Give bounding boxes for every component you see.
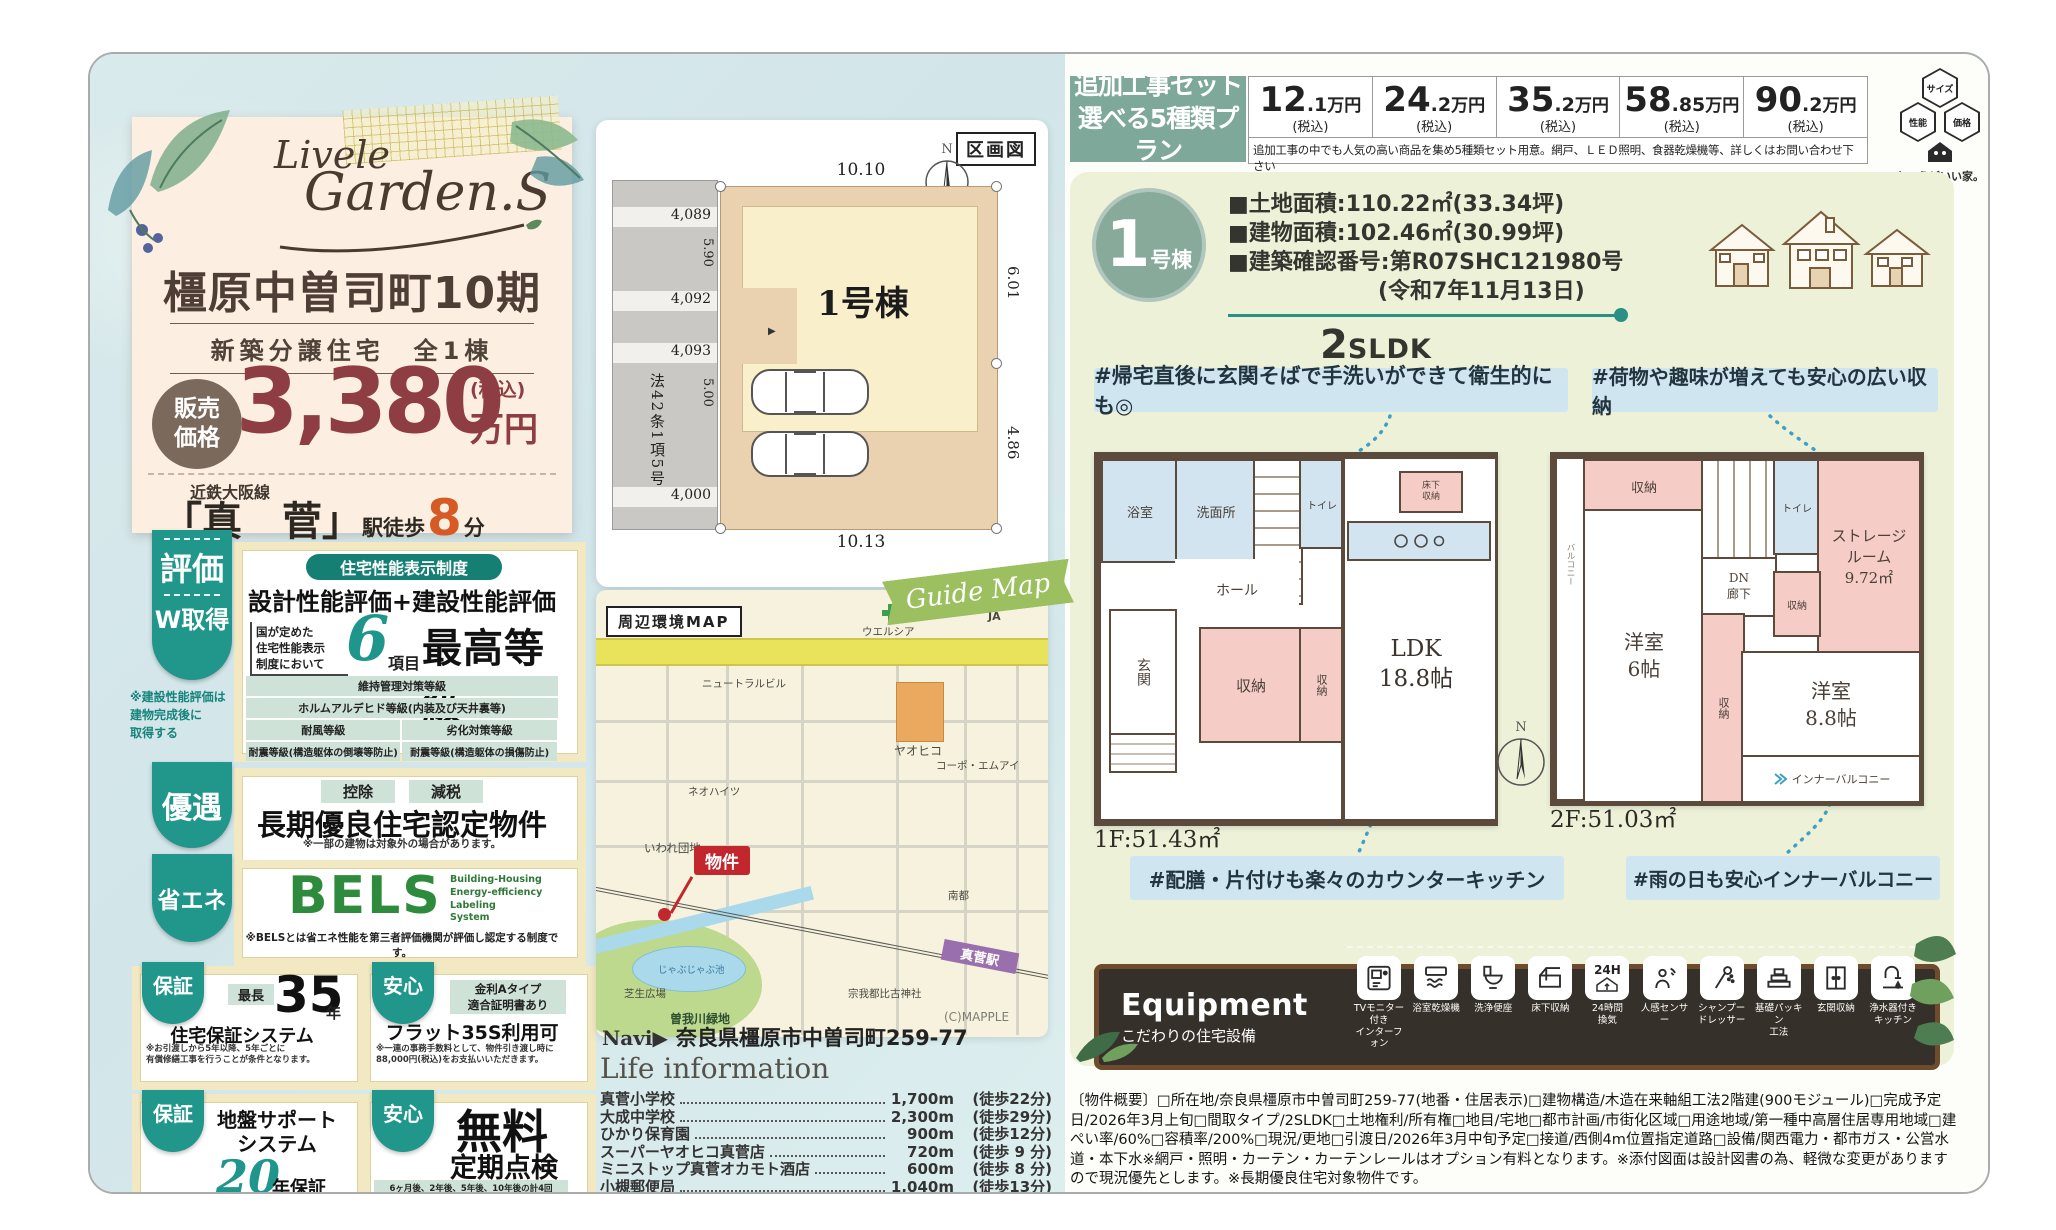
room-toilet-1f: トイレ [1299, 459, 1345, 549]
kitchen-counter [1347, 521, 1491, 561]
addon-plans-table: 12.1万円 (税込) 24.2万円 (税込) 35.2万円 (税込) 58.8… [1248, 76, 1868, 164]
compass-north-label: N [1494, 720, 1548, 735]
equipment-bar: Equipment こだわりの住宅設備 TVモニター付き インターフォン 浴室乾… [1094, 964, 1940, 1070]
motion-sensor-icon [1643, 956, 1687, 1000]
shoene-tab-label: 省エネ [158, 881, 227, 915]
plan-price-unit: 万円 [1451, 96, 1485, 116]
ground-support-title: 地盤サポート システム [212, 1108, 342, 1156]
plot-plan-card: 区画図 N 4,089 4,092 4,093 4,000 法42条1項5号 5… [596, 120, 1048, 587]
warranty35-chip: 最長 [228, 984, 274, 1005]
life-item: 大成中学校 2,300m (徒歩29分) [600, 1106, 1052, 1124]
eval-items: 維持管理対策等級 ホルムアルデヒド等級(内装及び天井裏等) 耐風等級 劣化対策等… [246, 676, 558, 761]
room-western-88: 洋室 8.8帖 [1741, 651, 1921, 759]
eval-item: 劣化対策等級 [402, 720, 556, 740]
plot-corner-dot [991, 523, 1002, 534]
ventilation-24h-icon: 24H [1585, 956, 1629, 1000]
life-item-dist: 900m [890, 1125, 954, 1143]
leader-dots [695, 1137, 885, 1139]
house-icon [1926, 140, 1954, 164]
warranty35-note: ※お引渡しから5年以降、5年ごとに 有償修繕工事を行うことが条件となります。 [146, 1044, 338, 1067]
plot-entry-marker: ▶ [768, 326, 776, 337]
eval-item: ホルムアルデヒド等級(内装及び天井裏等) [246, 698, 558, 718]
flat35-ribbon: 安心 [372, 962, 434, 1024]
floor2-area-label: 2F:51.03㎡ [1550, 800, 1676, 834]
plan-price-frac: .2 [1802, 94, 1822, 116]
equipment-item-label: 24時間 換気 [1579, 1003, 1635, 1027]
yuguu-tab-label: 優遇 [162, 783, 222, 827]
equipment-item: 24H 24時間 換気 [1579, 956, 1635, 1051]
room-bathroom: 浴室 [1101, 459, 1179, 563]
unit-number-suffix: 号棟 [1150, 244, 1192, 274]
map-yaohiko-building [896, 682, 944, 742]
road-width: 4,092 [613, 291, 717, 311]
road-width: 4,093 [613, 343, 717, 363]
road-law-label: 法42条1項5号 [647, 373, 668, 487]
hexagon-price-label: 価格 [1946, 104, 1978, 140]
arrow-icon [1772, 772, 1788, 786]
station-walk-label: 駅徒歩 [362, 512, 425, 542]
plan-price-int: 12 [1260, 80, 1307, 120]
room-storage-2f-b: 収納 [1701, 613, 1745, 803]
plan-price-int: 58 [1624, 80, 1671, 120]
ground-support-years: 20 [216, 1150, 280, 1194]
addon-plan-price: 24.2万円 (税込) [1372, 77, 1496, 137]
equipment-item: TVモニター付き インターフォン [1351, 956, 1407, 1051]
entrance-storage-icon [1814, 956, 1858, 1000]
map-title: 周辺環境MAP [606, 606, 742, 637]
hexagon-price: 価格 [1944, 102, 1980, 142]
bels-note: ※BELSとは省エネ性能を第三者評価機関が評価し認定する制度です。 [242, 930, 562, 960]
inspection-tab-label: 安心 [372, 1098, 434, 1127]
intercom-icon [1357, 956, 1401, 1000]
floorplan-1f: 浴室 洗面所 UP トイレ ホール 玄関 収納 収納 床下 収納 LDK 18.… [1094, 452, 1498, 826]
equipment-items: TVモニター付き インターフォン 浴室乾燥機 洗浄便座 [1347, 946, 1935, 1051]
plan-price-unit: 万円 [1705, 96, 1739, 116]
life-item: 小槻郵便局 1,040m (徒歩13分) [600, 1176, 1052, 1194]
eval-lead: 国が定めた 住宅性能表示 制度において [250, 622, 348, 676]
property-marker-dot [658, 908, 671, 921]
guide-map: 大和高田桜井線 真菅駅 ウエルシア JA ニュートラルビル ヤオヒコ コーポ・エ… [596, 590, 1048, 1037]
shoene-ribbon: 省エネ [152, 854, 232, 942]
life-item-name: 小槻郵便局 [600, 1176, 675, 1195]
equipment-item-label: 人感センサー [1637, 1003, 1693, 1027]
eval-count: 6 [346, 608, 389, 670]
equipment-item-label: 床下収納 [1522, 1003, 1578, 1015]
life-item-walk: (徒歩13分) [954, 1176, 1052, 1195]
equipment-item: 人感センサー [1637, 956, 1693, 1051]
yuguu-chip-genzei: 減税 [409, 780, 483, 803]
dim-right-lower: 4.86 [1004, 426, 1022, 459]
eval-item: 維持管理対策等級 [246, 676, 558, 696]
price-unit: 万円 [470, 402, 538, 451]
road-width: 4,000 [613, 487, 717, 507]
inner-balcony-label: インナーバルコニー [1792, 771, 1891, 787]
equipment-subtitle: こだわりの住宅設備 [1121, 1025, 1347, 1046]
plan-price-int: 90 [1755, 80, 1802, 120]
flat35-tab-label: 安心 [372, 970, 434, 999]
ground-support-tab-label: 保証 [142, 1098, 204, 1127]
evaluation-panel: 住宅性能表示制度 設計性能評価+建設性能評価 国が定めた 住宅性能表示 制度にお… [234, 542, 586, 762]
leader-dots [680, 1120, 885, 1122]
spec-confirmation-no: ■建築確認番号:第R07SHC121980号 [1228, 248, 1768, 277]
plan-price-frac: .2 [1431, 94, 1451, 116]
room-storage-small: 収納 [1299, 627, 1343, 743]
addon-plan-price: 90.2万円 (税込) [1743, 77, 1867, 137]
callout-washbasin: #帰宅直後に玄関そばで手洗いができて衛生的にも◎ [1094, 368, 1568, 412]
inspection-note: 6ヶ月後、2年後、5年後、10年後の計4回 [374, 1180, 568, 1194]
map-label-welcia: ウエルシア [862, 624, 915, 639]
leaf-decoration-icon [482, 102, 592, 222]
flat35-chip: 金利Aタイプ 適合証明書あり [450, 980, 566, 1014]
map-label-yaohiko: ヤオヒコ [894, 742, 942, 759]
room-entrance: 玄関 [1109, 609, 1177, 735]
navi-address: 奈良県橿原市中曽司町259-77 [676, 1022, 968, 1052]
road-width: 4,089 [613, 207, 717, 227]
warranty35-ribbon: 保証 [142, 962, 204, 1024]
room-hall: ホール [1175, 559, 1299, 621]
entrance-porch [1109, 733, 1177, 773]
spec-land-area: ■土地面積:110.22㎡(33.34坪) [1228, 190, 1768, 219]
addon-plans-label: 追加工事セット 選べる5種類プラン [1070, 76, 1246, 162]
yuguu-panel: 控除 減税 長期優良住宅認定物件 ※一部の建物は対象外の場合があります。 [234, 768, 586, 870]
stairs-down [1701, 459, 1777, 561]
map-station: 真菅駅 [941, 939, 1020, 974]
unit-number: 1 [1106, 213, 1151, 277]
hexagon-performance-label: 性能 [1902, 104, 1934, 140]
equipment-item: シャンプー ドレッサー [1694, 956, 1750, 1051]
price-value: 3,380 [236, 357, 472, 447]
inspection-ribbon: 安心 [372, 1090, 434, 1152]
warranty35-tab-label: 保証 [142, 970, 204, 999]
plan-price-unit: 万円 [1822, 96, 1856, 116]
room-storage-large: 収納 [1199, 627, 1303, 743]
map-road [746, 910, 1048, 913]
map-label-lawn-plaza: 芝生広場 [624, 986, 666, 1001]
plot-road-column: 4,089 4,092 4,093 4,000 法42条1項5号 [612, 180, 718, 530]
plot-corner-dot [715, 181, 726, 192]
dim-left-lower: 5.00 [700, 378, 715, 407]
room-balcony: バルコニー [1557, 459, 1586, 669]
walk-minutes: 8 [427, 489, 462, 547]
property-marker-label: 物件 [694, 846, 750, 875]
vent-badge-text: 24H [1594, 964, 1621, 976]
life-item: スーパーヤオヒコ真菅店 720m (徒歩 9 分) [600, 1141, 1052, 1159]
plan-price-frac: .85 [1672, 94, 1706, 116]
cooktop-icon [1389, 530, 1449, 552]
equipment-item: 基礎パッキン 工法 [1751, 956, 1807, 1051]
shampoo-dresser-icon [1700, 956, 1744, 1000]
plan-price-int: 24 [1383, 80, 1430, 120]
hexagon-size-label: サイズ [1924, 70, 1956, 106]
leader-dots [770, 1155, 885, 1157]
room-storage-2f-c: 収納 [1773, 571, 1821, 637]
floorplan-compass: N [1494, 720, 1548, 789]
leaf-decoration-icon [1072, 1024, 1142, 1064]
unit-detail-panel: 1 号棟 ■土地面積:110.22㎡(33.34坪) ■建物面積:102.46㎡… [1070, 172, 1954, 1066]
warranty35-years-unit: 年 [326, 1002, 341, 1023]
callout-storage: #荷物や趣味が増えても安心の広い収納 [1592, 368, 1938, 412]
plan-price-unit: 万円 [1327, 96, 1361, 116]
plot-building-label: 1号棟 [788, 276, 938, 325]
leader-dots [680, 1102, 885, 1104]
equipment-item: 床下収納 [1522, 956, 1578, 1051]
property-title: 橿原中曽司町10期 [140, 257, 564, 321]
addon-plans-note: 追加工事の中でも人気の高い商品を集め5種類セット用意。網戸、ＬＥＤ照明、食器乾燥… [1249, 137, 1867, 167]
life-item: ひかり保育園 900m (徒歩12分) [600, 1123, 1052, 1141]
life-information-list: 真菅小学校 1,700m (徒歩22分) 大成中学校 2,300m (徒歩29分… [600, 1088, 1052, 1193]
plan-price-unit: 万円 [1575, 96, 1609, 116]
map-label-pond: じゃぶじゃぶ池 [658, 962, 725, 976]
dim-left-upper: 5.90 [700, 238, 715, 267]
map-label-iware-danchi: いわれ団地 [644, 840, 701, 856]
room-inner-balcony: インナーバルコニー [1741, 755, 1921, 803]
life-item: ミニストップ真菅オカモト酒店 600m (徒歩 8 分) [600, 1158, 1052, 1176]
price-unit-block: (税込) 万円 [470, 375, 538, 451]
map-label-corpo: コーポ・エムアイ [936, 758, 1019, 773]
spec-building-area: ■建物面積:102.46㎡(30.99坪) [1228, 219, 1768, 248]
compass-north-label: N [922, 142, 972, 157]
price-tax: (税込) [470, 375, 538, 402]
eval-item: 耐震等級(構造躯体の損傷防止) [402, 742, 556, 761]
eval-tab-sublabel: W取得 [152, 600, 232, 635]
eval-tab-label: 評価 [152, 544, 232, 590]
hexagon-performance: 性能 [1900, 102, 1936, 142]
washlet-icon [1471, 956, 1515, 1000]
property-outline: 〔物件概要〕□所在地/奈良県橿原市中曽司町259-77(地番・住居表示)□建物構… [1070, 1092, 1958, 1190]
yuguu-note: ※一部の建物は対象外の場合があります。 [242, 836, 562, 851]
plot-corner-dot [991, 358, 1002, 369]
eval-header: 住宅性能表示制度 [306, 554, 502, 580]
leader-dots [680, 1190, 885, 1192]
map-label-nanto: 南都 [948, 888, 969, 903]
bels-logo: BELS [288, 868, 442, 925]
life-item-dist: 600m [890, 1160, 954, 1178]
plan-price-frac: .2 [1554, 94, 1574, 116]
equipment-item: 浴室乾燥機 [1408, 956, 1464, 1051]
leaf-decoration-icon [90, 90, 250, 260]
plan-price-int: 35 [1507, 80, 1554, 120]
bath-dryer-icon [1414, 956, 1458, 1000]
bels-panel: BELS Building-Housing Energy-efficiency … [234, 860, 586, 966]
unit-specs: ■土地面積:110.22㎡(33.34坪) ■建物面積:102.46㎡(30.9… [1228, 190, 1768, 306]
ground-support-years-unit: 年保証 [272, 1174, 326, 1194]
room-storage-2f-a: 収納 [1583, 459, 1705, 513]
plot-corner-dot [715, 523, 726, 534]
equipment-item-label: 浴室乾燥機 [1408, 1003, 1464, 1015]
spec-confirmation-date: (令和7年11月13日) [1228, 277, 1768, 306]
addon-plan-price: 58.85万円 (税込) [1619, 77, 1743, 137]
room-storage-room: ストレージ ルーム 9.72㎡ [1817, 459, 1921, 655]
dim-top: 10.10 [786, 160, 936, 180]
unit-underline-dot [1614, 308, 1628, 322]
leaf-decoration-icon [1906, 914, 1958, 1064]
unit-number-circle: 1 号棟 [1092, 188, 1206, 302]
map-label-neo-heights: ネオハイツ [688, 784, 740, 799]
equipment-item: 玄関収納 [1808, 956, 1864, 1051]
underfloor-storage-icon [1528, 956, 1572, 1000]
room-floor-storage: 床下 収納 [1399, 471, 1463, 513]
map-label-shrine: 宗我都比古神社 [848, 986, 922, 1001]
corridor-dn: DN 廊下 [1701, 557, 1777, 617]
plot-corner-dot [991, 181, 1002, 192]
price-badge: 販売 価格 [152, 379, 242, 469]
room-washroom: 洗面所 [1175, 459, 1257, 563]
logo-swoosh-icon [274, 217, 544, 257]
eval-note: ※建設性能評価は 建物完成後に 取得する [130, 688, 266, 742]
floorplan-2f: バルコニー 収納 洋室 6帖 DN 廊下 トイレ ストレージ ルーム 9.72㎡… [1550, 452, 1924, 806]
plan-price-frac: .1 [1307, 94, 1327, 116]
price-divider [148, 473, 556, 475]
map-main-road [596, 638, 1048, 666]
dim-bottom: 10.13 [786, 532, 936, 552]
leader-dots [815, 1172, 885, 1174]
addon-plan-price: 12.1万円 (税込) [1249, 77, 1372, 137]
yuguu-chip-kojo: 控除 [321, 780, 395, 803]
equipment-item-label: シャンプー ドレッサー [1694, 1003, 1750, 1027]
equipment-title: Equipment [1121, 988, 1347, 1023]
equipment-item-label: 洗浄便座 [1465, 1003, 1521, 1015]
walk-unit: 分 [464, 512, 485, 542]
ground-support-ribbon: 保証 [142, 1090, 204, 1152]
map-road [596, 780, 1048, 783]
foundation-packing-icon [1757, 956, 1801, 1000]
eval-ribbon: 評価 W取得 [152, 530, 232, 680]
life-item-dist: 720m [890, 1143, 954, 1161]
callout-inner-balcony: #雨の日も安心インナーバルコニー [1626, 856, 1940, 900]
eval-title: 設計性能評価+建設性能評価 [242, 582, 562, 617]
floor1-area-label: 1F:51.43㎡ [1094, 820, 1220, 854]
compass-icon [1494, 735, 1548, 789]
eval-count-unit: 項目 [388, 650, 420, 674]
room-toilet-2f: トイレ [1773, 459, 1821, 555]
navi-row: Navi▶ 奈良県橿原市中曽司町259-77 [602, 1022, 968, 1052]
life-item-dist: 1,040m [890, 1178, 954, 1195]
house-sketches-icon [1706, 198, 1932, 304]
map-label-neutral-bldg: ニュートラルビル [702, 676, 786, 691]
life-information-title: Life information [600, 1052, 829, 1085]
dim-right-upper: 6.01 [1004, 266, 1022, 299]
flat35-note: ※一連の事務手数料として、物件引き渡し時に 88,000円(税込)をお支払いいた… [376, 1044, 570, 1067]
car-icon [746, 426, 874, 482]
life-item: 真菅小学校 1,700m (徒歩22分) [600, 1088, 1052, 1106]
equipment-item-label: 玄関収納 [1808, 1003, 1864, 1015]
equipment-item: 洗浄便座 [1465, 956, 1521, 1051]
life-item-dist: 2,300m [890, 1108, 954, 1126]
equipment-item-label: 基礎パッキン 工法 [1751, 1003, 1807, 1039]
eval-item: 耐風等級 [246, 720, 400, 740]
room-ldk-label: LDK 18.8帖 [1341, 635, 1491, 695]
room-western-6: 洋室 6帖 [1583, 509, 1705, 803]
bels-sub: Building-Housing Energy-efficiency Label… [450, 874, 542, 925]
life-item-dist: 1,700m [890, 1090, 954, 1108]
navi-label: Navi▶ [602, 1026, 668, 1050]
car-icon [746, 364, 874, 420]
unit-underline [1228, 314, 1620, 317]
yuguu-ribbon: 優遇 [152, 762, 232, 848]
equipment-item-label: TVモニター付き インターフォン [1351, 1003, 1407, 1051]
flyer-sheet: Livele Garden.S 橿原中曽司町10期 新築分譲住宅 全1棟 販売 … [88, 52, 1990, 1194]
eval-item: 耐震等級(構造躯体の倒壊等防止) [246, 742, 400, 761]
map-road [596, 720, 1048, 723]
callout-kitchen: #配膳・片付けも楽々のカウンターキッチン [1130, 856, 1564, 900]
yuguu-chips: 控除 減税 [242, 780, 562, 803]
addon-plan-price: 35.2万円 (税込) [1496, 77, 1620, 137]
hexagon-size: サイズ [1922, 68, 1958, 108]
